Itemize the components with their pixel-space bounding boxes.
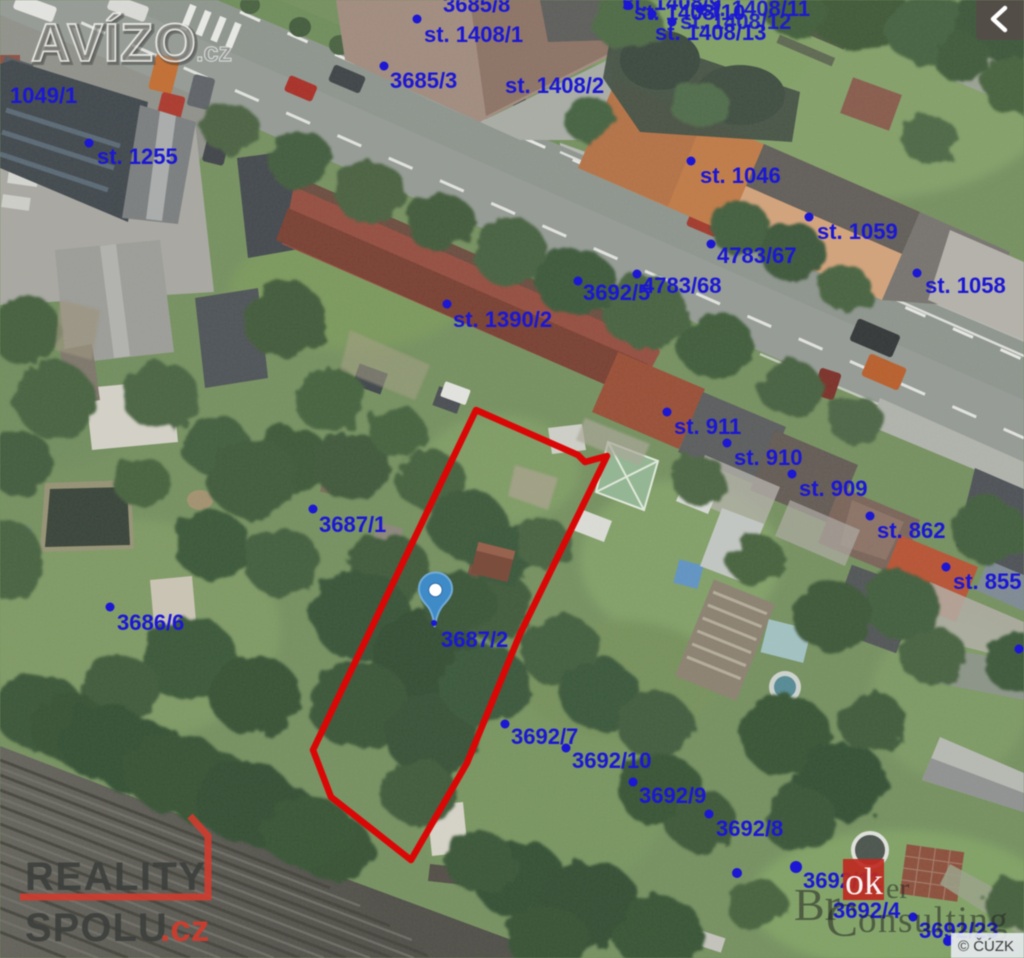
svg-text:3692/7: 3692/7 [511,724,578,749]
svg-text:3685/8: 3685/8 [443,0,510,17]
svg-text:3692/8: 3692/8 [716,816,783,841]
svg-text:.cz: .cz [160,908,209,949]
svg-text:st. 909: st. 909 [799,476,868,501]
svg-text:© ČÚZK: © ČÚZK [958,938,1014,955]
svg-text:3687/2: 3687/2 [441,627,508,652]
svg-text:3686/6: 3686/6 [117,610,184,635]
svg-text:3692/5: 3692/5 [583,280,650,305]
svg-text:st. 1255: st. 1255 [97,144,178,169]
svg-text:3685/3: 3685/3 [390,68,457,93]
svg-text:1049/1: 1049/1 [10,83,77,108]
svg-text:st. 862: st. 862 [877,518,946,543]
svg-text:st. 855: st. 855 [953,569,1022,594]
svg-text:st. 910: st. 910 [734,445,803,470]
svg-text:st. 911: st. 911 [674,414,741,439]
svg-text:REALITY: REALITY [25,855,207,899]
svg-text:3692/9: 3692/9 [639,783,706,808]
svg-text:st. 1058: st. 1058 [925,273,1006,298]
svg-text:4783/68: 4783/68 [642,273,722,298]
svg-text:.cz: .cz [196,37,232,67]
svg-text:AVÍZO: AVÍZO [31,13,197,73]
svg-text:4783/67: 4783/67 [717,243,797,268]
svg-text:st. 1046: st. 1046 [700,163,781,188]
svg-text:3687/1: 3687/1 [319,512,386,537]
svg-text:st. 1408/11: st. 1408/11 [700,0,810,21]
svg-text:C: C [826,894,858,947]
svg-text:st. 1059: st. 1059 [817,219,898,244]
svg-text:3692/10: 3692/10 [572,748,652,773]
svg-text:st. 1408/2: st. 1408/2 [505,73,604,98]
svg-text:st. 1408/1: st. 1408/1 [424,22,523,47]
svg-text:SPOLU: SPOLU [25,906,168,950]
svg-text:st. 1390/2: st. 1390/2 [453,307,552,332]
